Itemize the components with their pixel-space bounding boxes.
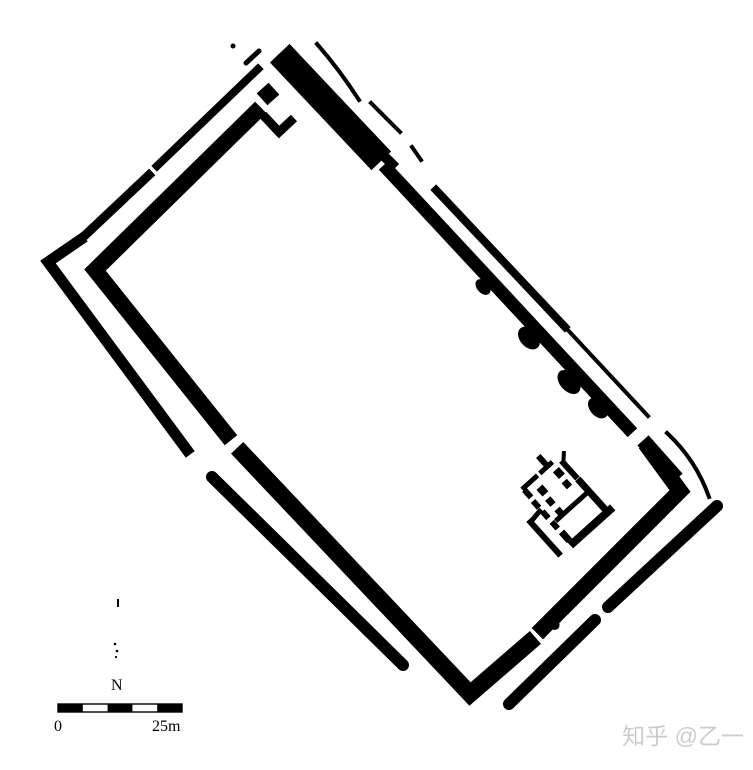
- wall-northeast: [388, 170, 628, 428]
- north-arrow-dot: [115, 656, 117, 658]
- building-top-nub: [559, 453, 569, 463]
- north-label: N: [111, 677, 123, 694]
- outer-northeast-arc-2: [371, 103, 400, 132]
- building-left-wall-b: [524, 477, 536, 488]
- scale-bar-cell-filled: [58, 704, 83, 712]
- pillar-block: [531, 499, 541, 510]
- scale-bar-cell-filled: [108, 704, 133, 712]
- pillar-block: [553, 467, 565, 479]
- wall-northwest-and-west-corner: [95, 113, 255, 434]
- scale-zero-label: 0: [54, 718, 62, 735]
- gate-outer-dot: [231, 44, 236, 49]
- north-arrow-dot: [114, 643, 117, 646]
- inner-rampart: [95, 63, 680, 694]
- scale-max-label: 25m: [152, 718, 181, 735]
- wall-southwest-and-south-corner: [243, 454, 529, 694]
- building-right-wall: [573, 510, 609, 543]
- interior-building: [503, 444, 613, 555]
- scale-bar-cell-filled: [157, 704, 182, 712]
- outer-west-corner-southwest: [48, 240, 187, 450]
- north-arrow: N: [111, 599, 123, 694]
- gate-baffle-wall: [263, 115, 294, 132]
- watermark-text: 知乎 @乙一: [622, 723, 744, 749]
- gate-pier-block: [257, 83, 280, 106]
- outer-northeast-band: [436, 190, 565, 327]
- pillar-block: [562, 479, 573, 490]
- gate-outer-dash: [246, 51, 259, 63]
- wall-northeast-corner-stub: [648, 446, 672, 473]
- scale-bar: 0 25m: [54, 704, 182, 735]
- wall-north-corner-mass: [289, 63, 372, 151]
- site-plan-figure: N 0 25m 知乎 @乙一: [0, 0, 753, 770]
- north-arrow-dot: [116, 650, 119, 653]
- outer-southeast-lower: [509, 620, 595, 704]
- outer-southwest-lower: [212, 477, 403, 665]
- pillar-block: [536, 485, 548, 497]
- site-plan-svg: N 0 25m 知乎 @乙一: [0, 0, 753, 770]
- pillar-block: [545, 496, 556, 507]
- building-left-nub: [540, 458, 547, 465]
- outer-northeast-dash: [412, 147, 421, 160]
